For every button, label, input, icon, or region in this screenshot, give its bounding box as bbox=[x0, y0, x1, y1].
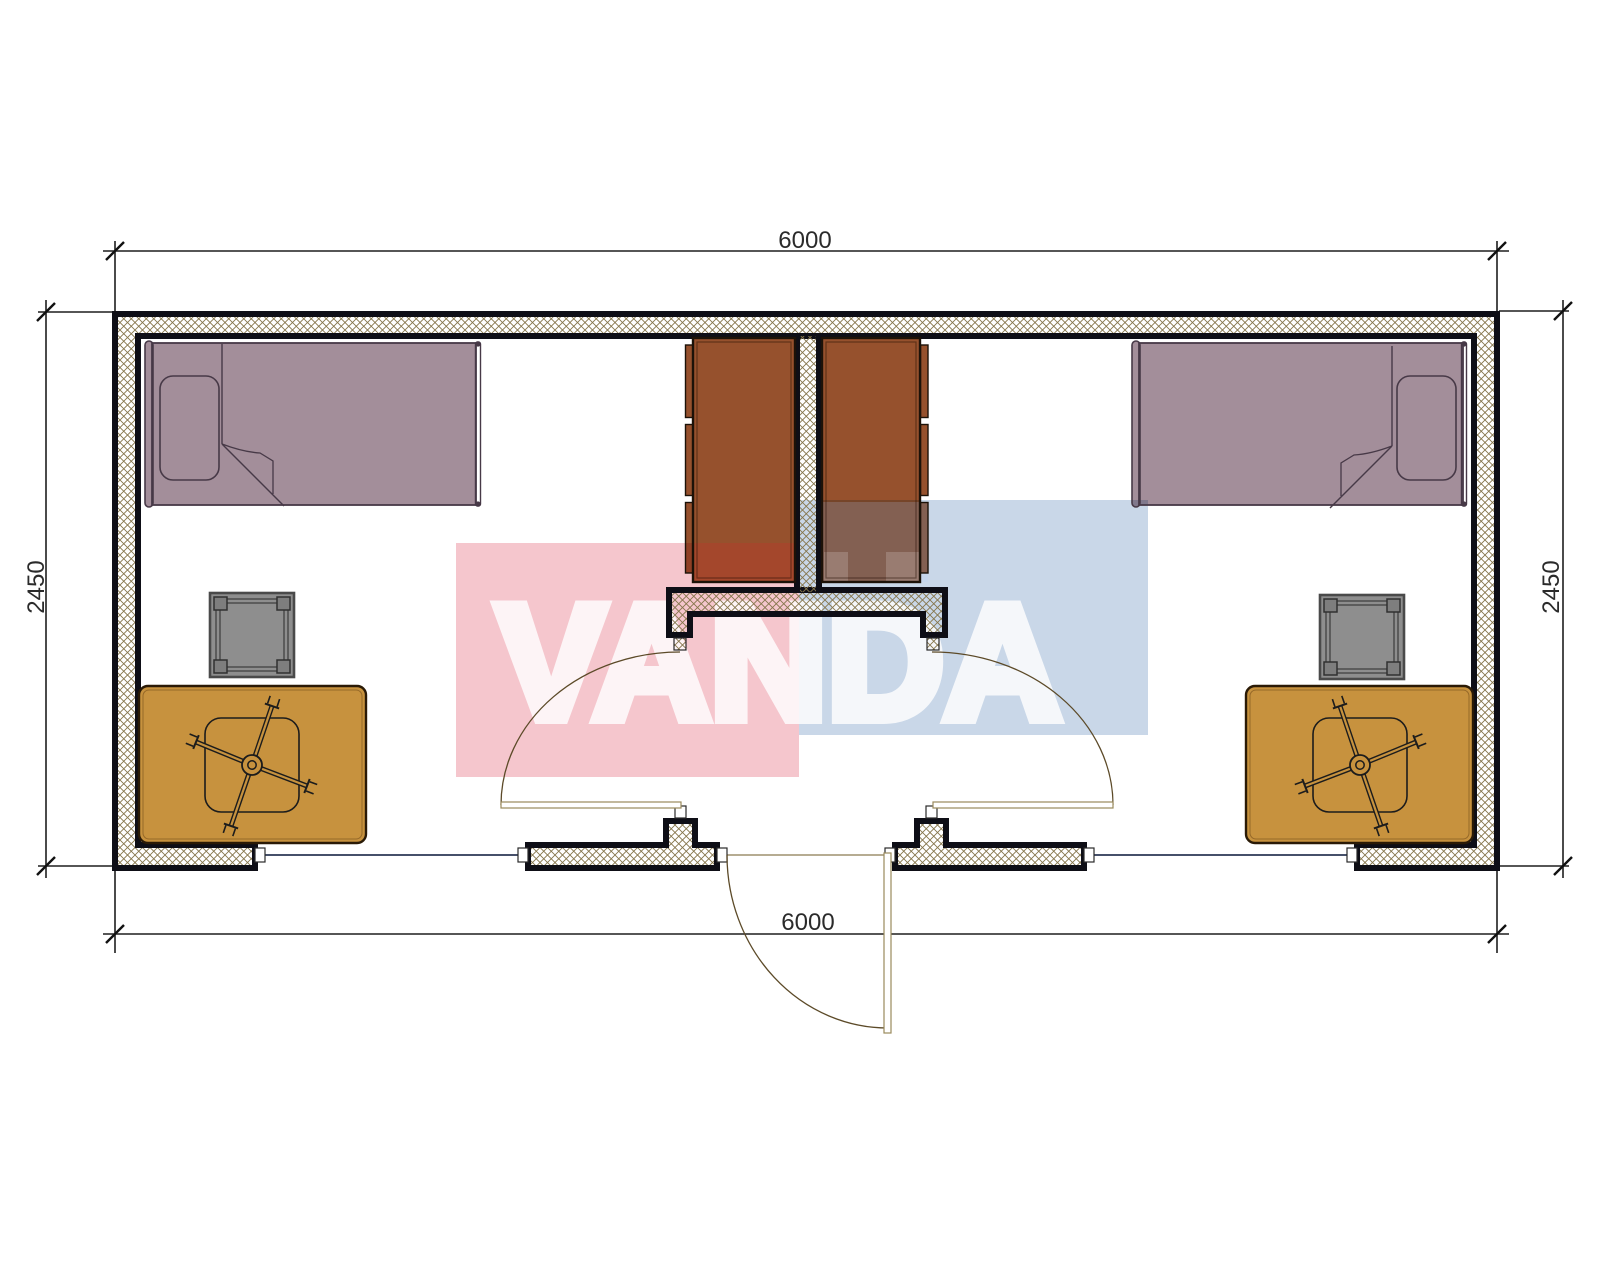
svg-text:2450: 2450 bbox=[1538, 560, 1565, 613]
svg-text:2450: 2450 bbox=[23, 560, 50, 613]
svg-text:6000: 6000 bbox=[778, 227, 831, 254]
svg-text:6000: 6000 bbox=[781, 909, 834, 936]
